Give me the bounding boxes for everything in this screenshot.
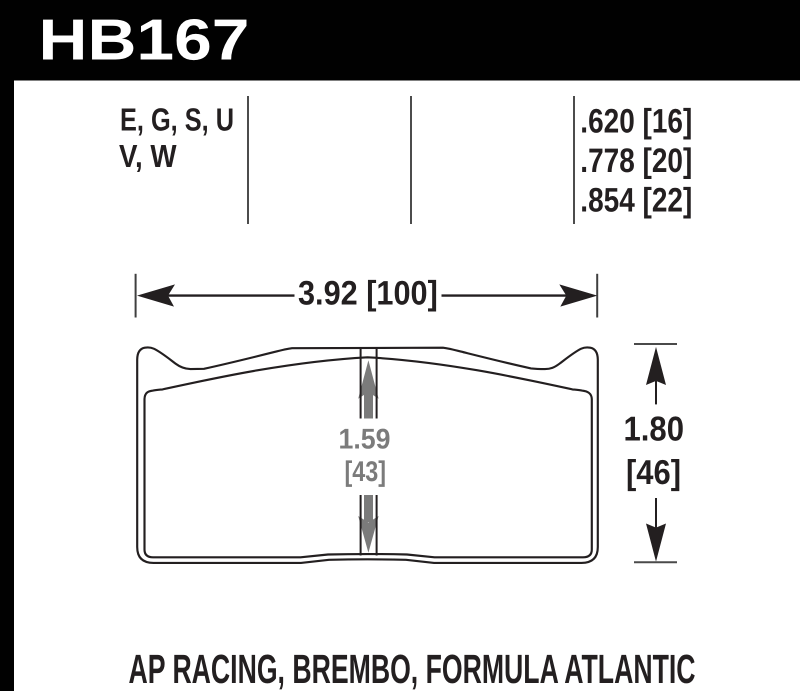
svg-text:E, G, S, U: E, G, S, U xyxy=(120,101,234,137)
svg-text:1.80: 1.80 xyxy=(624,411,685,449)
svg-text:[43]: [43] xyxy=(345,456,387,488)
svg-text:AP RACING, BREMBO, FORMULA ATL: AP RACING, BREMBO, FORMULA ATLANTIC xyxy=(129,646,696,691)
svg-text:.620 [16]: .620 [16] xyxy=(580,103,692,141)
svg-text:V, W: V, W xyxy=(119,138,177,174)
svg-text:.778 [20]: .778 [20] xyxy=(580,142,692,180)
svg-text:[46]: [46] xyxy=(626,454,681,492)
svg-text:3.92 [100]: 3.92 [100] xyxy=(298,274,438,312)
svg-text:HB167: HB167 xyxy=(39,7,250,72)
svg-text:.854 [22]: .854 [22] xyxy=(580,182,692,220)
svg-text:1.59: 1.59 xyxy=(339,424,391,456)
